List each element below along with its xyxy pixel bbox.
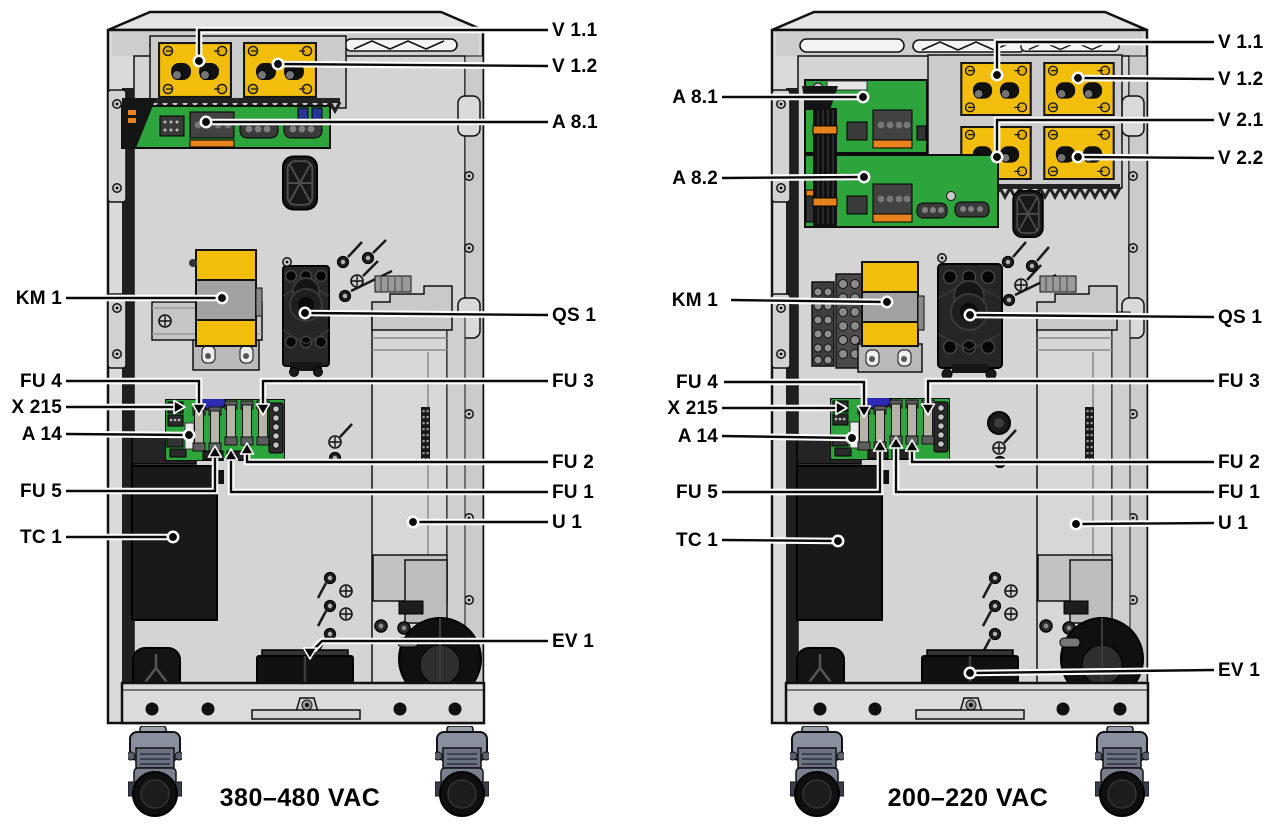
callout-left-fu1: FU 1 xyxy=(552,482,594,503)
right-vent-slot xyxy=(800,39,904,52)
right-caster-right xyxy=(1094,726,1150,816)
callout-right-fu1: FU 1 xyxy=(1218,482,1260,503)
callout-right-v12: V 1.2 xyxy=(1218,69,1263,90)
callout-right-km1: KM 1 xyxy=(672,290,718,311)
left-base-frame xyxy=(122,683,484,723)
callout-right-a14: A 14 xyxy=(678,426,718,447)
callout-right-fu3: FU 3 xyxy=(1218,371,1260,392)
callout-left-fu2: FU 2 xyxy=(552,452,594,473)
callout-right-ev1: EV 1 xyxy=(1218,660,1260,681)
callout-right-a82: A 8.2 xyxy=(672,168,718,189)
right-cabinet-illustration xyxy=(772,12,1150,816)
right-base-frame xyxy=(786,683,1148,723)
callout-left-a14: A 14 xyxy=(22,424,62,445)
callout-right-fu4: FU 4 xyxy=(676,372,718,393)
callout-right-qs1: QS 1 xyxy=(1218,307,1262,328)
callout-right-v21: V 2.1 xyxy=(1218,110,1263,131)
callout-left-fu5: FU 5 xyxy=(20,481,62,502)
callout-right-v11: V 1.1 xyxy=(1218,32,1263,53)
caption-left-unit: 380–480 VAC xyxy=(170,784,430,813)
right-panel-handle xyxy=(1013,191,1043,237)
callout-left-u1: U 1 xyxy=(552,512,582,533)
callout-left-v12: V 1.2 xyxy=(552,56,597,77)
cabinet-location-diagram: V 1.1 V 1.2 A 8.1 QS 1 FU 3 FU 2 FU 1 U … xyxy=(0,0,1280,832)
left-ev1-fan xyxy=(257,650,353,684)
left-caster-right xyxy=(434,726,490,816)
callout-right-a81: A 8.1 xyxy=(672,87,718,108)
callout-left-qs1: QS 1 xyxy=(552,305,596,326)
callout-left-a81: A 8.1 xyxy=(552,112,598,133)
callout-left-v11: V 1.1 xyxy=(552,20,597,41)
left-vent-grille xyxy=(345,39,457,51)
right-caster-left xyxy=(789,726,845,816)
callout-right-fu5: FU 5 xyxy=(676,482,718,503)
diagram-artwork xyxy=(0,0,1280,832)
callout-left-fu4: FU 4 xyxy=(20,371,62,392)
callout-left-tc1: TC 1 xyxy=(20,527,62,548)
callout-left-km1: KM 1 xyxy=(16,288,62,309)
right-fuse-board xyxy=(830,393,950,460)
left-diode-module-v11 xyxy=(159,43,231,97)
right-cabinet-roof xyxy=(772,12,1147,30)
callout-right-tc1: TC 1 xyxy=(676,530,718,551)
callout-right-u1: U 1 xyxy=(1218,513,1248,534)
callout-left-x215: X 215 xyxy=(11,397,62,418)
callout-right-v22: V 2.2 xyxy=(1218,148,1263,169)
callout-left-ev1: EV 1 xyxy=(552,631,594,652)
caption-right-unit: 200–220 VAC xyxy=(838,784,1098,813)
callout-right-fu2: FU 2 xyxy=(1218,452,1260,473)
left-cabinet-illustration xyxy=(108,12,490,816)
right-diode-module-v12 xyxy=(1044,63,1113,115)
left-panel-handle xyxy=(283,156,317,209)
callout-left-fu3: FU 3 xyxy=(552,371,594,392)
callout-right-x215: X 215 xyxy=(667,398,718,419)
